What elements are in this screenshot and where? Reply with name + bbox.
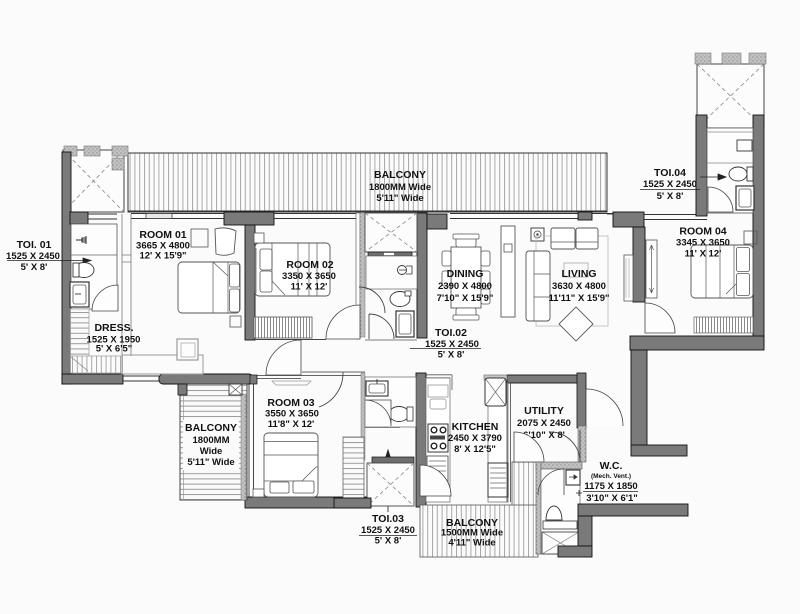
- svg-text:5' X 8': 5' X 8': [21, 262, 48, 273]
- svg-text:4'11" Wide: 4'11" Wide: [448, 538, 495, 549]
- svg-text:ROOM 03: ROOM 03: [267, 397, 314, 409]
- svg-text:DRESS.: DRESS.: [94, 322, 133, 334]
- svg-text:3'10" X 6'1": 3'10" X 6'1": [586, 493, 638, 504]
- svg-text:1800MM: 1800MM: [193, 435, 230, 446]
- svg-text:3550 X 3650: 3550 X 3650: [265, 409, 319, 420]
- svg-text:5'11" Wide: 5'11" Wide: [187, 457, 234, 468]
- svg-text:7'10" X 15'9": 7'10" X 15'9": [437, 293, 494, 304]
- svg-text:TOI.04: TOI.04: [654, 167, 686, 179]
- svg-text:5'11" Wide: 5'11" Wide: [376, 193, 423, 204]
- svg-text:1525 X 2450: 1525 X 2450: [361, 525, 415, 536]
- svg-text:ROOM 04: ROOM 04: [679, 226, 726, 238]
- svg-text:LIVING: LIVING: [561, 268, 596, 280]
- svg-text:2075 X 2450: 2075 X 2450: [517, 418, 571, 429]
- svg-text:12' X 15'9": 12' X 15'9": [139, 251, 186, 262]
- svg-text:2390 X 4800: 2390 X 4800: [438, 281, 492, 292]
- svg-text:5' X 8': 5' X 8': [657, 191, 684, 202]
- svg-text:KITCHEN: KITCHEN: [452, 421, 499, 433]
- svg-text:3350 X 3650: 3350 X 3650: [282, 271, 336, 282]
- svg-text:DINING: DINING: [447, 268, 484, 280]
- svg-text:3345 X 3650: 3345 X 3650: [676, 238, 730, 249]
- svg-text:5' X 6'5": 5' X 6'5": [96, 344, 133, 355]
- svg-text:8' X 12'5": 8' X 12'5": [454, 444, 496, 455]
- svg-text:ROOM 02: ROOM 02: [286, 259, 333, 271]
- svg-text:TOI.02: TOI.02: [435, 327, 467, 339]
- svg-text:ROOM 01: ROOM 01: [139, 229, 186, 241]
- svg-text:2450 X 3790: 2450 X 3790: [448, 433, 502, 444]
- svg-text:11'8" X 12': 11'8" X 12': [268, 419, 315, 430]
- svg-text:5' X 8': 5' X 8': [375, 536, 402, 547]
- svg-text:TOI. 01: TOI. 01: [17, 239, 52, 251]
- svg-text:(Mech. Vent.): (Mech. Vent.): [591, 473, 631, 480]
- svg-text:1525 X 2450: 1525 X 2450: [643, 179, 697, 190]
- svg-text:11'11" X 15'9": 11'11" X 15'9": [548, 293, 609, 304]
- svg-text:W.C.: W.C.: [600, 460, 623, 472]
- svg-text:TOI.03: TOI.03: [372, 513, 404, 525]
- svg-text:11' X 12': 11' X 12': [291, 282, 328, 293]
- svg-text:UTILITY: UTILITY: [524, 405, 564, 417]
- svg-text:5' X 8': 5' X 8': [438, 350, 465, 361]
- svg-text:1175 X 1850: 1175 X 1850: [584, 481, 637, 492]
- svg-text:BALCONY: BALCONY: [185, 422, 237, 434]
- svg-text:3630 X 4800: 3630 X 4800: [552, 281, 606, 292]
- svg-text:1800MM Wide: 1800MM Wide: [369, 182, 431, 193]
- svg-text:BALCONY: BALCONY: [374, 169, 426, 181]
- svg-text:11' X 12': 11' X 12': [685, 249, 722, 260]
- svg-text:Wide: Wide: [200, 446, 223, 457]
